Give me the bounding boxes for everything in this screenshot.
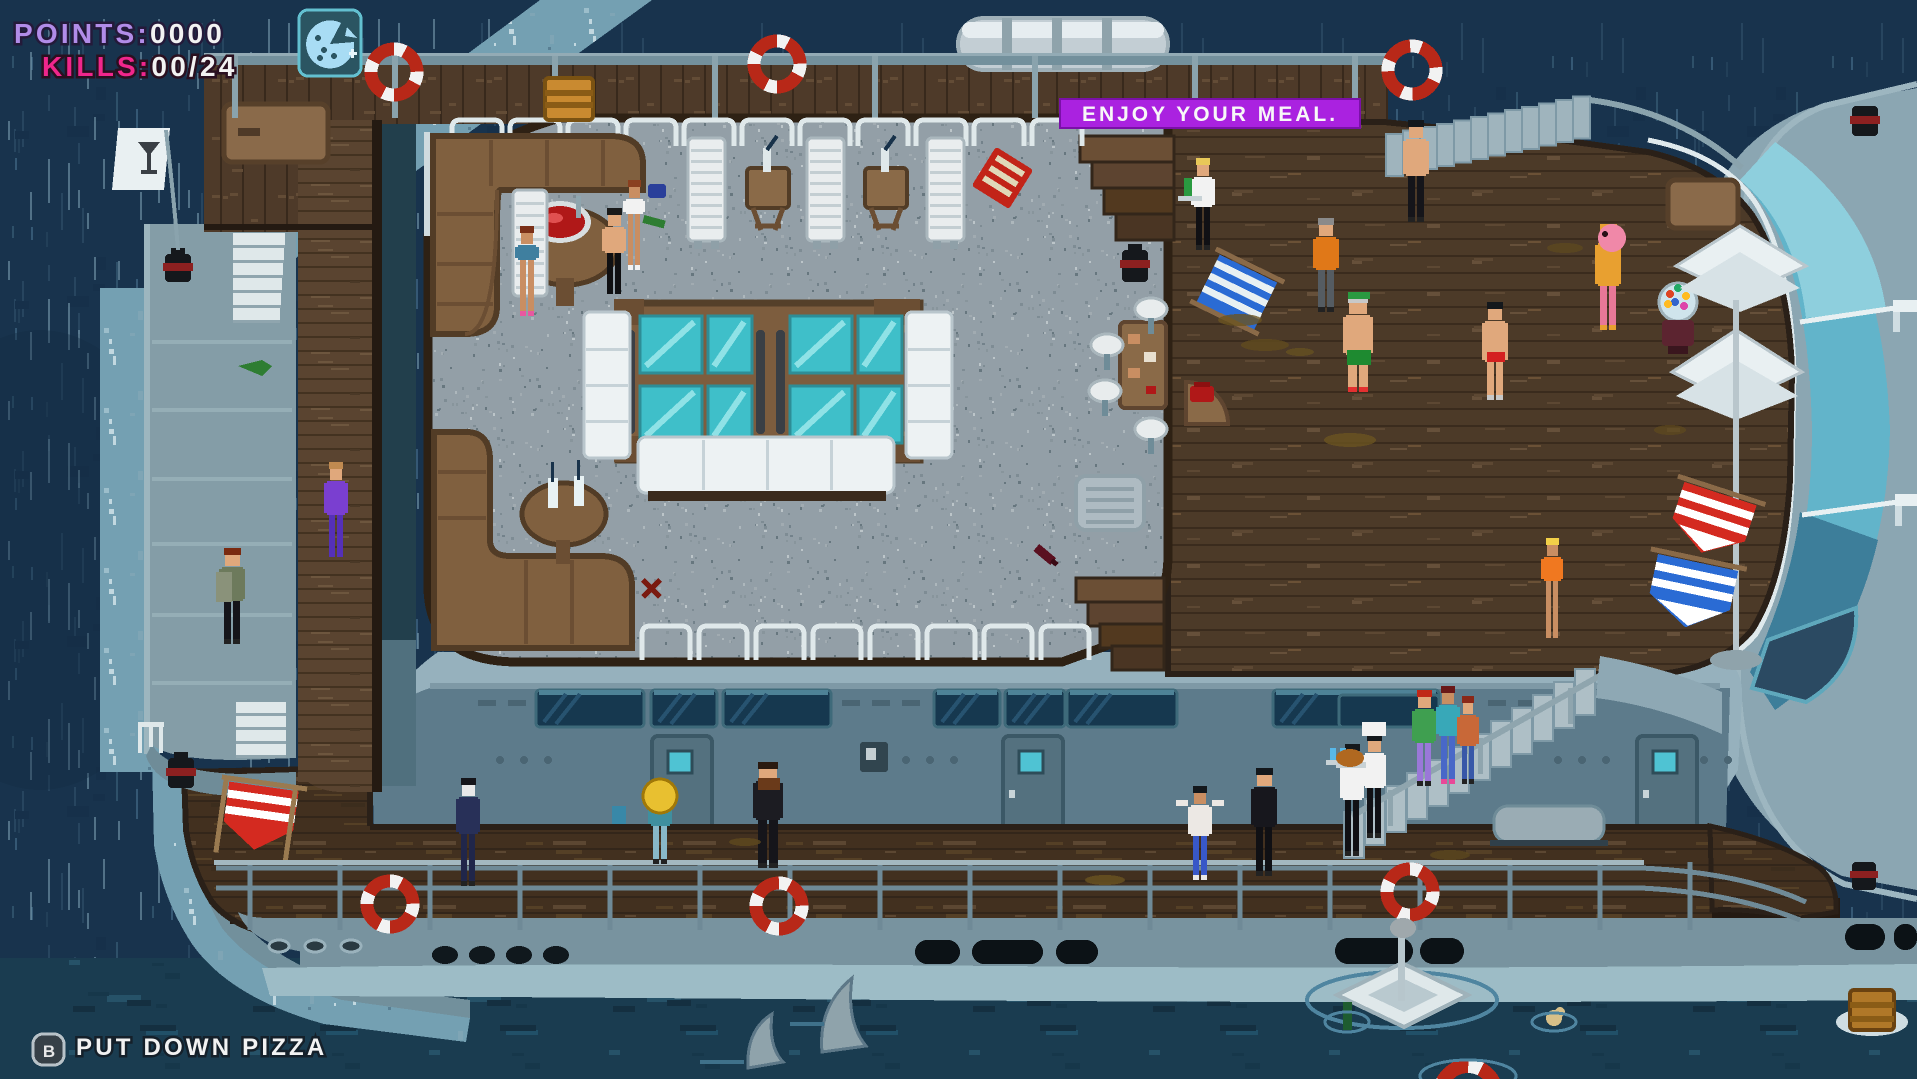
svg-text:ENJOY YOUR MEAL.: ENJOY YOUR MEAL. — [1082, 103, 1338, 126]
svg-text:KILLS:00/24: KILLS:00/24 — [42, 51, 238, 82]
svg-text:B: B — [43, 1042, 55, 1061]
svg-text:POINTS:0000: POINTS:0000 — [14, 18, 225, 49]
svg-text:PUT DOWN PIZZA: PUT DOWN PIZZA — [76, 1034, 327, 1061]
